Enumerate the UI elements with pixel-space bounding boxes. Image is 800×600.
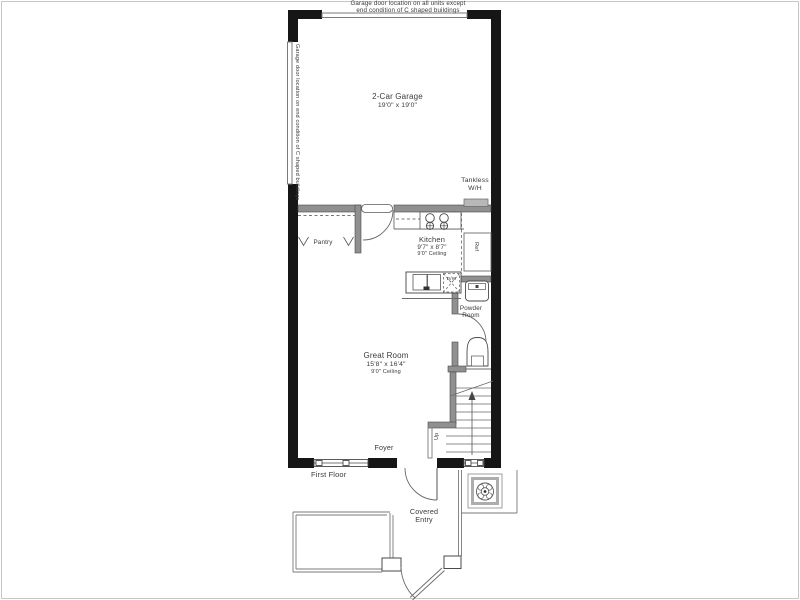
great-room-label: Great Room 15'8" x 16'4" 9'0" Ceiling <box>338 352 434 375</box>
kitchen-island <box>406 272 461 293</box>
wall-top-left-v <box>288 10 298 42</box>
column-light-fixture-icon <box>468 474 502 508</box>
powder-room-label: Powder Room <box>452 305 490 319</box>
wall-stair-jog <box>428 422 456 428</box>
entry-post-right <box>444 556 461 569</box>
wall-garage-kitchen-left <box>298 205 361 212</box>
kitchen-door-leaf <box>362 205 393 213</box>
wall-bottom-2 <box>368 458 397 468</box>
entry-gate-swing <box>401 567 415 598</box>
front-door-swing <box>405 468 437 500</box>
pantry-label: Pantry <box>302 239 344 246</box>
floor-plan-page: Garage door location on all units except… <box>0 0 800 600</box>
tankless-water-heater-icon <box>464 199 488 207</box>
garage-room-label: 2-Car Garage 19'0" x 19'0" <box>345 93 450 110</box>
wall-right <box>491 10 501 468</box>
foyer-label: Foyer <box>366 444 402 452</box>
wall-bottom-4 <box>484 458 501 468</box>
pedestal-sink-icon <box>467 338 488 367</box>
kitchen-label: Kitchen 9'7" x 8'7" 9'0" Ceiling <box>400 236 464 258</box>
window-icon-right <box>464 460 484 467</box>
wall-powder-bottom <box>448 366 466 372</box>
refrigerator-label: Ref <box>473 242 479 268</box>
dishwasher-label: D/W <box>443 277 460 282</box>
entry-gate <box>401 567 445 600</box>
tankless-wh-label: Tankless W/H <box>450 177 500 192</box>
covered-entry-label: Covered Entry <box>398 508 450 524</box>
window-icon-left <box>314 460 368 467</box>
stairs-up-label: Up <box>434 433 440 440</box>
wall-bottom-1 <box>288 458 314 468</box>
up-arrow-icon <box>469 391 476 400</box>
entry-gate-leaf <box>410 568 445 600</box>
cooktop-icon <box>420 212 461 229</box>
wall-bottom-3 <box>437 458 464 468</box>
wall-foyer-stub <box>428 428 432 458</box>
first-floor-label: First Floor <box>311 471 346 479</box>
wall-left <box>288 184 298 468</box>
garage-door-side-icon <box>288 42 293 184</box>
entry-posts <box>382 556 461 571</box>
garage-door-top-note: Garage door location on all units except… <box>298 1 518 15</box>
wall-pantry <box>355 205 361 253</box>
wall-stair-left <box>450 372 456 424</box>
toilet-icon <box>466 281 489 301</box>
kitchen-door-swing <box>363 210 393 240</box>
garage-door-side-note: Garage door location on end condition of… <box>294 44 300 186</box>
entry-post-left <box>382 558 401 571</box>
